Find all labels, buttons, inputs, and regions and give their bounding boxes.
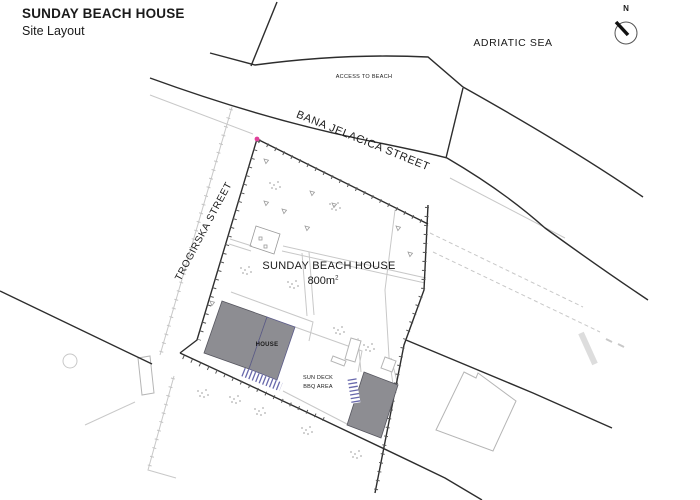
label-bbq-area: BBQ AREA xyxy=(286,383,350,392)
light-tick-marks xyxy=(149,109,231,468)
survey-corner-point xyxy=(255,137,260,142)
label-access-to-beach: ACCESS TO BEACH xyxy=(322,74,406,80)
neighbor-structure-ne xyxy=(581,333,595,364)
label-adriatic-sea: ADRIATIC SEA xyxy=(458,37,568,49)
drawing-subtitle: Site Layout xyxy=(22,24,85,38)
label-house: HOUSE xyxy=(237,342,297,348)
label-sun-deck: SUN DECK xyxy=(286,374,350,383)
north-arrow-icon xyxy=(615,22,637,44)
neighbor-building-se xyxy=(436,372,516,451)
stray-line-sw xyxy=(85,402,135,425)
white-structures-layer xyxy=(138,338,516,451)
neighbor-marks-ne xyxy=(606,339,624,347)
site-area-value: 800m xyxy=(308,275,336,287)
coast-line xyxy=(210,53,643,197)
buildings-layer xyxy=(204,301,398,438)
site-plan-page: SUNDAY BEACH HOUSE Site Layout ADRIATIC … xyxy=(0,0,700,500)
garden-path-west xyxy=(229,239,252,251)
north-letter-label: N xyxy=(615,4,637,13)
inner-path-ne xyxy=(385,210,395,357)
label-site-area: 800m2 xyxy=(263,275,383,287)
street-south-edge-west xyxy=(0,291,152,364)
site-area-superscript: 2 xyxy=(335,275,338,281)
curb-line-se xyxy=(450,178,565,238)
well-structure xyxy=(250,226,280,254)
curb-line-nw xyxy=(150,95,253,134)
beach-access-west-edge xyxy=(251,2,277,66)
beach-access-east-edge xyxy=(446,88,463,158)
neighbor-boundary-dashed-2 xyxy=(433,252,600,332)
drawing-title: SUNDAY BEACH HOUSE xyxy=(22,6,185,21)
neighbor-boundary-dashed-1 xyxy=(430,233,583,307)
utility-circle xyxy=(63,354,77,368)
property-boundary-east xyxy=(375,205,428,493)
planter-box-1 xyxy=(345,338,361,362)
label-sun-deck-bbq: SUN DECK BBQ AREA xyxy=(286,374,350,392)
label-site-name: SUNDAY BEACH HOUSE xyxy=(249,260,409,272)
planter-box-3 xyxy=(331,356,346,366)
